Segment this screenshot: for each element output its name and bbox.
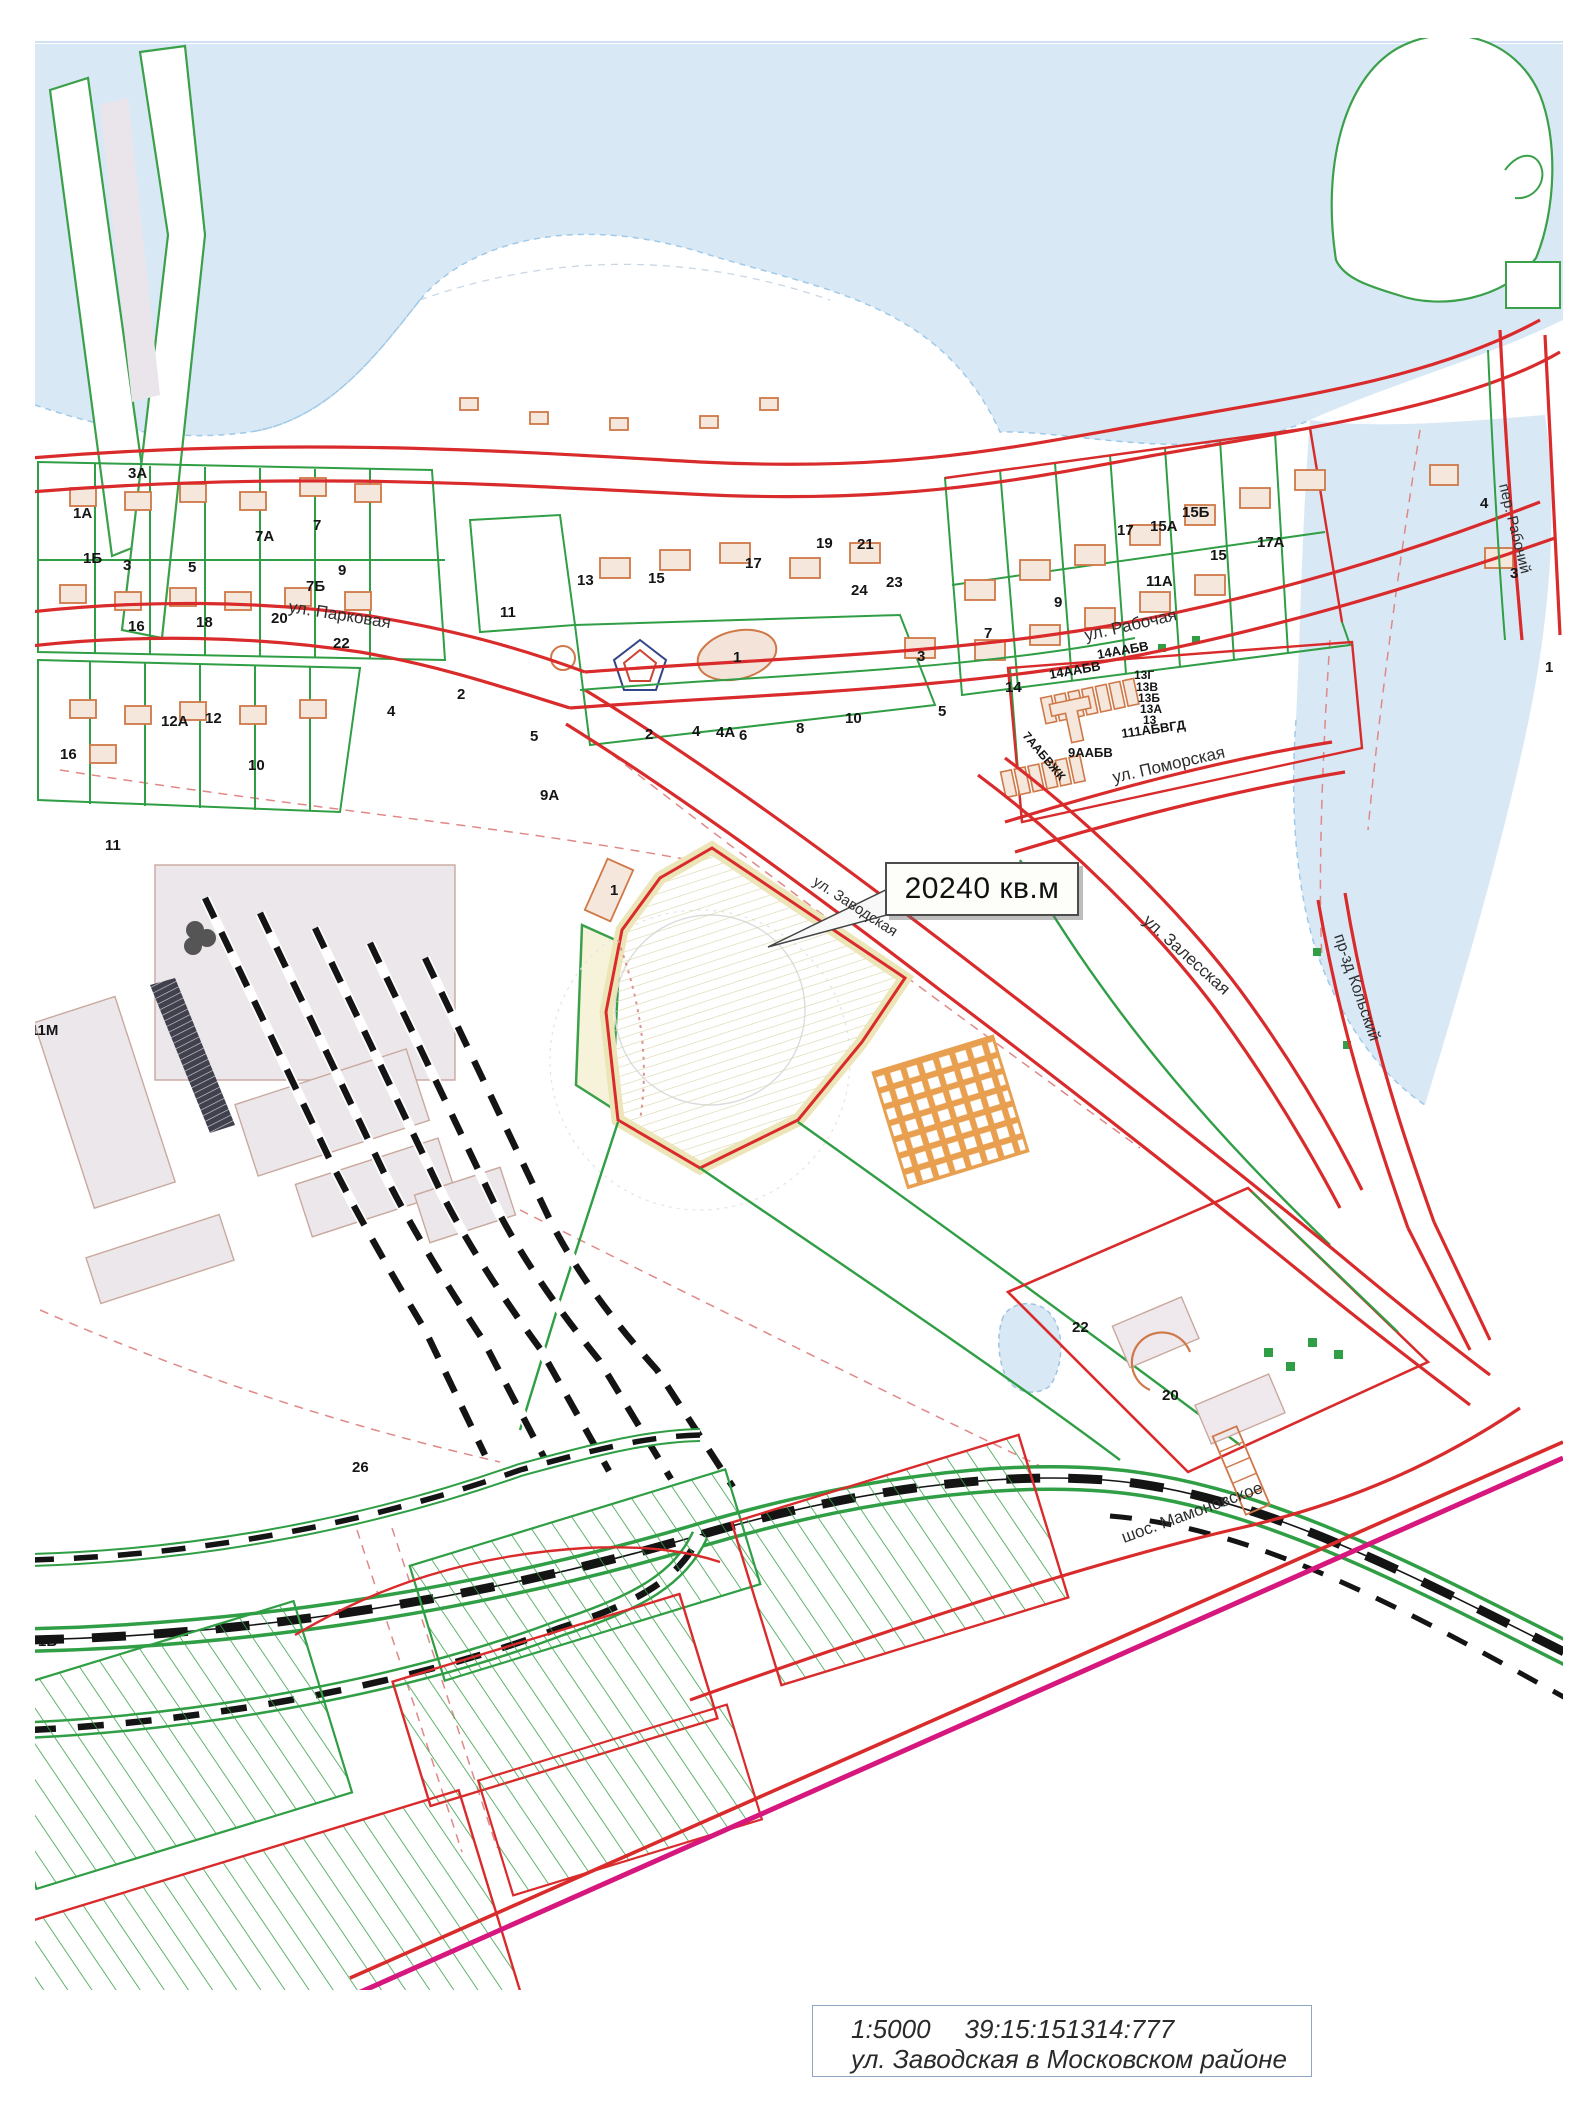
parcel-label: 11 (105, 837, 121, 854)
parcel-label: 11 (500, 604, 516, 621)
parcel-label: 15 (648, 570, 665, 587)
parcel-label: 26 (352, 1459, 369, 1476)
parcel-label: 3 (1510, 565, 1518, 582)
parcel-label: 24 (851, 582, 868, 599)
parcel-label: 17 (745, 555, 762, 572)
parcel-label: 15Б (1182, 504, 1210, 521)
parcel-label: 6 (739, 727, 747, 744)
parcel-label: 22 (1072, 1319, 1089, 1336)
peninsula (1332, 35, 1560, 308)
parcel-label: 22 (333, 635, 350, 652)
area-callout-label: 20240 кв.м (885, 862, 1079, 916)
parcel-label: 16 (128, 618, 145, 635)
map-info-footer: 1:500039:15:151314:777 ул. Заводская в М… (812, 2005, 1312, 2077)
street-label: ул. Парковая (287, 597, 392, 632)
parcel-label: 5 (188, 559, 196, 576)
parcel-label: 4 (387, 703, 396, 720)
parcel-label: 20 (1162, 1387, 1179, 1404)
parcel-label: 2 (645, 726, 653, 743)
area-value: 20240 кв.м (905, 872, 1060, 906)
cadastral-number: 39:15:151314:777 (965, 2014, 1175, 2044)
parcel-label: 9ААБВ (1068, 745, 1113, 760)
parcel-label: 9 (338, 562, 346, 579)
parcel-label: 1Б (38, 1633, 57, 1650)
parcel-label: 20 (271, 610, 288, 627)
parcel-label: 7 (313, 517, 321, 534)
parcel-label: 13 (577, 572, 594, 589)
parcel-label: 15 (1210, 547, 1227, 564)
parcel-label: 1 (1545, 659, 1553, 676)
parcel-label: 4 (692, 723, 701, 740)
parcel-label: 14 (1005, 679, 1022, 696)
parcel-label: 12А (161, 713, 189, 730)
parcel-label: 10 (845, 710, 862, 727)
parcel-label: 3 (917, 648, 925, 665)
parcel-label: 18 (196, 614, 213, 631)
parcel-label: 15А (1150, 518, 1178, 535)
parcel-label: 3А (128, 465, 147, 482)
parcel-label: 17А (1257, 534, 1285, 551)
parcel-label: 12 (205, 710, 222, 727)
garden-grid-block (873, 1036, 1028, 1187)
parcel-label: 7Б (306, 578, 325, 595)
scanned-cadastral-map-page: ул. Парковаяул. Рабочаяул. Поморскаяул. … (0, 0, 1595, 2120)
parcel-label: 10 (248, 757, 265, 774)
parcel-label: 4 (1480, 495, 1489, 512)
parcel-label: 5 (530, 728, 538, 745)
parcel-label: 3 (123, 557, 131, 574)
parcel-label: 4А (716, 724, 735, 741)
footer-address-line: ул. Заводская в Московском районе (851, 2044, 1311, 2074)
parcel-label: 111АБВГД (1120, 717, 1187, 741)
parcel-label: 1 (610, 882, 618, 899)
parcel-label: 1Б (83, 550, 102, 567)
parcel-label: 11А (1146, 573, 1173, 590)
parcel-label: 8 (796, 720, 804, 737)
parcel-label: 21 (857, 536, 874, 553)
parcel-label: 11М (30, 1022, 58, 1039)
parcel-label: 19 (816, 535, 833, 552)
parcel-label: 5 (938, 703, 946, 720)
pentagon-landmark (551, 622, 782, 690)
parcel-label: 2 (457, 686, 465, 703)
parcel-label: 7А (255, 528, 274, 545)
parcel-label: 16 (60, 746, 77, 763)
parcel-label: 9А (540, 787, 559, 804)
map-address: ул. Заводская в Московском районе (851, 2044, 1287, 2074)
industrial-zone (34, 865, 515, 1303)
map-canvas: ул. Парковаяул. Рабочаяул. Поморскаяул. … (0, 0, 1595, 2120)
parcel-label: 17 (1117, 522, 1134, 539)
footer-scale-line: 1:500039:15:151314:777 (851, 2014, 1311, 2044)
parcel-label: 7 (984, 625, 992, 642)
parcel-label: 1А (73, 505, 92, 522)
parcel-label: 1 (733, 649, 741, 666)
parcel-label: 23 (886, 574, 903, 591)
map-scale: 1:5000 (851, 2014, 931, 2044)
parcel-label: 9 (1054, 594, 1062, 611)
